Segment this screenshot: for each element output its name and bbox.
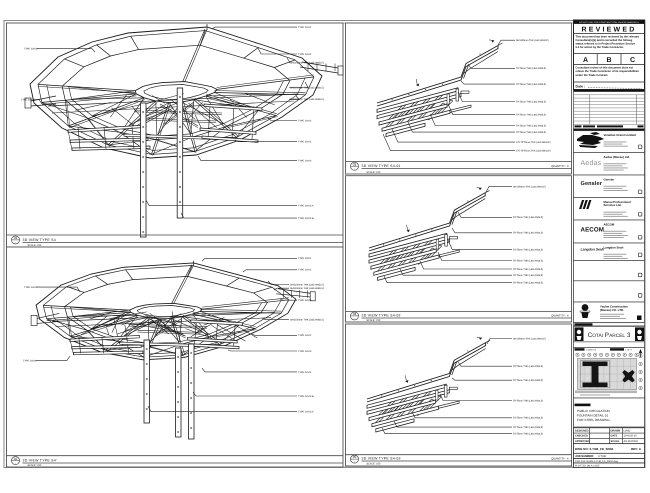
svg-text:75*75mm THK (L&G ANGLE): 75*75mm THK (L&G ANGLE) [513,274,543,277]
svg-text:SHS150mm THK (L&G ANGLE): SHS150mm THK (L&G ANGLE) [513,186,546,189]
svg-text:19-AUG-10: 19-AUG-10 [624,435,638,438]
svg-text:Services Ltd.: Services Ltd. [604,203,622,207]
svg-text:75*75mm THK (L&G ANGLE): 75*75mm THK (L&G ANGLE) [513,399,543,402]
svg-text:SHS150mm THK (L&G ANGLE): SHS150mm THK (L&G ANGLE) [290,86,324,89]
svg-text:DO NOT USE FOR CONSTRUCTION UN: DO NOT USE FOR CONSTRUCTION UNLESS MARKE… [579,21,639,24]
svg-text:75*75mm THK (L&G ANGLE): 75*75mm THK (L&G ANGLE) [516,67,546,70]
svg-text:TYPE S4-03 B: TYPE S4-03 B [298,217,314,220]
svg-text:75*75mm THK (L&G ANGLE): 75*75mm THK (L&G ANGLE) [516,131,546,134]
svg-text:-: - [599,435,600,438]
svg-text:SHS150mm THK (L&G ANGLE): SHS150mm THK (L&G ANGLE) [516,39,549,42]
svg-text:QUANTITY : 4: QUANTITY : 4 [551,314,569,317]
svg-text:C: C [630,57,635,64]
svg-text:3D VIEW TYPE S4-02: 3D VIEW TYPE S4-02 [362,313,401,317]
svg-text:-: - [354,167,355,171]
svg-text:SCALE 1:50: SCALE 1:50 [367,463,381,466]
svg-text:This document has been reviewe: This document has been reviewed by the r… [576,35,640,38]
svg-text:TYPE S4-02: TYPE S4-02 [21,98,35,101]
svg-text:3D VIEW TYPE S4': 3D VIEW TYPE S4' [23,458,57,462]
svg-text:TYPE S4-02: TYPE S4-02 [298,334,312,337]
svg-text:75*75mm THK (L&G ANGLE): 75*75mm THK (L&G ANGLE) [513,282,543,285]
svg-text:75*75mm THK (L&G ANGLE): 75*75mm THK (L&G ANGLE) [513,365,543,368]
svg-text:3-TUB: 3-TUB [598,455,606,458]
svg-text:75*75mm THK (L&G ANGLE): 75*75mm THK (L&G ANGLE) [516,83,546,86]
svg-text:Consultant(s)(s) and is acc: Consultant(s)(s) and is accorded the fol… [576,39,633,42]
svg-text:QUANTITY : 4: QUANTITY : 4 [551,165,569,168]
svg-text:TYPE S4-03 B: TYPE S4-03 B [298,395,314,398]
svg-text:DRAWN: DRAWN [611,429,621,432]
svg-text:TYPE S4-03: TYPE S4-03 [24,48,38,51]
svg-text:status referred to in Projec: status referred to in Project Procedure … [576,43,636,46]
svg-text:5.4 for action by the Trade C: 5.4 for action by the Trade Contractor. [576,46,625,49]
svg-text:TYPE S4-03 A: TYPE S4-03 A [298,204,314,207]
svg-text:TYPE S4-02: TYPE S4-02 [24,286,38,289]
svg-text:3D VIEW TYPE S4-01: 3D VIEW TYPE S4-01 [362,164,401,168]
svg-text:SCALE 1:50: SCALE 1:50 [28,244,42,247]
svg-text:75*75mm THK (L&G ANGLE): 75*75mm THK (L&G ANGLE) [516,124,546,127]
svg-text:AECOM: AECOM [581,227,605,234]
svg-text:75*75mm THK (L&G ANGLE): 75*75mm THK (L&G ANGLE) [513,433,543,436]
svg-text:75*75mm THK (L&G ANGLE): 75*75mm THK (L&G ANGLE) [513,417,543,420]
svg-text:-: - [599,440,600,443]
svg-text:L75 75*75mm THK (L&G ANGLE): L75 75*75mm THK (L&G ANGLE) [516,141,551,144]
svg-text:75*75mm THK (L&G ANGLE): 75*75mm THK (L&G ANGLE) [513,248,543,251]
svg-text:SCALE 1:50: SCALE 1:50 [367,319,381,322]
svg-text:REVIEWED: REVIEWED [582,26,637,33]
svg-text:Date :: Date : [576,85,585,89]
svg-text:SHS150mm THK (L&G ANGLE): SHS150mm THK (L&G ANGLE) [290,319,324,322]
svg-text:TYPE S4-02: TYPE S4-02 [298,299,312,302]
svg-text:LVND: LVND [624,429,631,432]
svg-text:Aedas: Aedas [581,159,602,167]
svg-text:75*75mm THK (L&G ANGLE): 75*75mm THK (L&G ANGLE) [513,259,543,262]
svg-text:-: - [15,240,16,244]
svg-text:75*75mm THK (L&G ANGLE): 75*75mm THK (L&G ANGLE) [513,426,543,429]
svg-text:SHS150mm THK (L&G ANGLE): SHS150mm THK (L&G ANGLE) [290,61,324,64]
svg-text:SCALE 1:50: SCALE 1:50 [367,171,381,174]
svg-text:TYPE S4-04: TYPE S4-04 [298,371,312,374]
svg-text:CHECKED: CHECKED [575,435,588,438]
svg-text:TYPE S4-03 A: TYPE S4-03 A [298,411,314,414]
svg-text:Gensler: Gensler [604,177,616,181]
svg-text:AS SHOWN: AS SHOWN [624,440,638,443]
svg-text:75*75mm THK (L&G ANGLE): 75*75mm THK (L&G ANGLE) [513,379,543,382]
svg-text:FOR STEEL DRAWING: FOR STEEL DRAWING [577,418,610,422]
svg-text:Gensler: Gensler [581,180,603,187]
svg-text:TYPE S4-01: TYPE S4-01 [298,257,312,260]
svg-text:TYPE S4-02: TYPE S4-02 [298,119,312,122]
svg-text:TYPE S4-01: TYPE S4-01 [298,26,312,29]
svg-text:SCALE: SCALE [611,440,620,443]
svg-text:SHS150mm THK (L&G ANGLE): SHS150mm THK (L&G ANGLE) [290,287,324,290]
svg-text:DATE: DATE [611,435,618,438]
svg-text:relieve the Trade Contractor o: relieve the Trade Contractor of its resp… [576,70,640,73]
svg-text:Aedas (Macau) Ltd.: Aedas (Macau) Ltd. [604,155,631,159]
svg-text:TYPE S4-04: TYPE S4-04 [298,141,312,144]
svg-text:-: - [354,316,355,320]
svg-text:TYPE S4-02: TYPE S4-02 [298,269,312,272]
svg-text:TYPE S4-03: TYPE S4-03 [23,359,37,362]
svg-text:Langdon Seah: Langdon Seah [604,245,624,249]
svg-text:SCALE 1:50: SCALE 1:50 [28,464,42,467]
svg-text:PLOTTED ON A1 SIZE: PLOTTED ON A1 SIZE [575,464,600,467]
svg-text:TYPE S4-03: TYPE S4-03 [298,160,312,163]
svg-text:75*75mm THK (L&G ANGLE): 75*75mm THK (L&G ANGLE) [516,100,546,103]
svg-text:SHS150mm THK (L&G ANGLE): SHS150mm THK (L&G ANGLE) [290,98,324,101]
svg-text:Consultant review of this docu: Consultant review of this document does … [576,67,634,70]
svg-text:APPROVED: APPROVED [575,440,590,443]
svg-text:SHS150mm THK (L&G ANGLE): SHS150mm THK (L&G ANGLE) [513,337,546,340]
svg-text:CAD FILE NAME:3-TUB_FD_SN04.dw: CAD FILE NAME:3-TUB_FD_SN04.dwg [575,460,618,463]
svg-text:1 OF 3: 1 OF 3 [625,348,632,351]
svg-text:PUBLIC CIRCULATION: PUBLIC CIRCULATION [577,409,610,413]
svg-text:75*75mm THK (L&G ANGLE): 75*75mm THK (L&G ANGLE) [516,113,546,116]
svg-text:Langdon Seah: Langdon Seah [581,248,604,252]
svg-text:75*75mm THK (L&G ANGLE): 75*75mm THK (L&G ANGLE) [513,216,543,219]
svg-text:B: B [606,57,611,64]
svg-text:TYPE S4-03: TYPE S4-03 [298,350,312,353]
svg-text:3D VIEW TYPE S4: 3D VIEW TYPE S4 [23,238,56,242]
svg-text:3D VIEW TYPE S4-03: 3D VIEW TYPE S4-03 [362,456,401,460]
svg-text:L75 75*75mm THK (L&G ANGLE): L75 75*75mm THK (L&G ANGLE) [516,150,551,153]
svg-text:FOUNTAIN DETAIL 01: FOUNTAIN DETAIL 01 [577,414,609,418]
svg-text:DWG NO: 3-TUB_FD_SN04: DWG NO: 3-TUB_FD_SN04 [575,447,614,451]
svg-text:SHS150mm THK (L&G ANGLE): SHS150mm THK (L&G ANGLE) [290,283,324,286]
svg-text:REV: A: REV: A [631,447,642,451]
svg-text:COTAI PARCEL 3: COTAI PARCEL 3 [588,332,631,339]
svg-text:under the Trade Contract.: under the Trade Contract. [576,74,609,77]
svg-text:TYPE S4-02: TYPE S4-02 [298,53,312,56]
svg-text:1/2500 S3: 1/2500 S3 [586,348,597,351]
svg-text:-: - [354,459,355,463]
svg-text:DESIGNED: DESIGNED [575,429,589,432]
svg-text:AECOM: AECOM [604,222,615,226]
svg-text:JOB NUMBER:: JOB NUMBER: [575,455,594,458]
svg-text:Venetian Orient Limited: Venetian Orient Limited [604,133,637,137]
svg-text:A: A [583,57,588,64]
svg-text:75*75mm THK (L&G ANGLE): 75*75mm THK (L&G ANGLE) [513,232,543,235]
svg-text:(Macau) CO. LTD.: (Macau) CO. LTD. [600,308,624,312]
svg-text:75*75mm THK (L&G ANGLE): 75*75mm THK (L&G ANGLE) [513,268,543,271]
svg-text:-: - [15,461,16,465]
svg-text:QUANTITY : 4: QUANTITY : 4 [551,457,569,460]
